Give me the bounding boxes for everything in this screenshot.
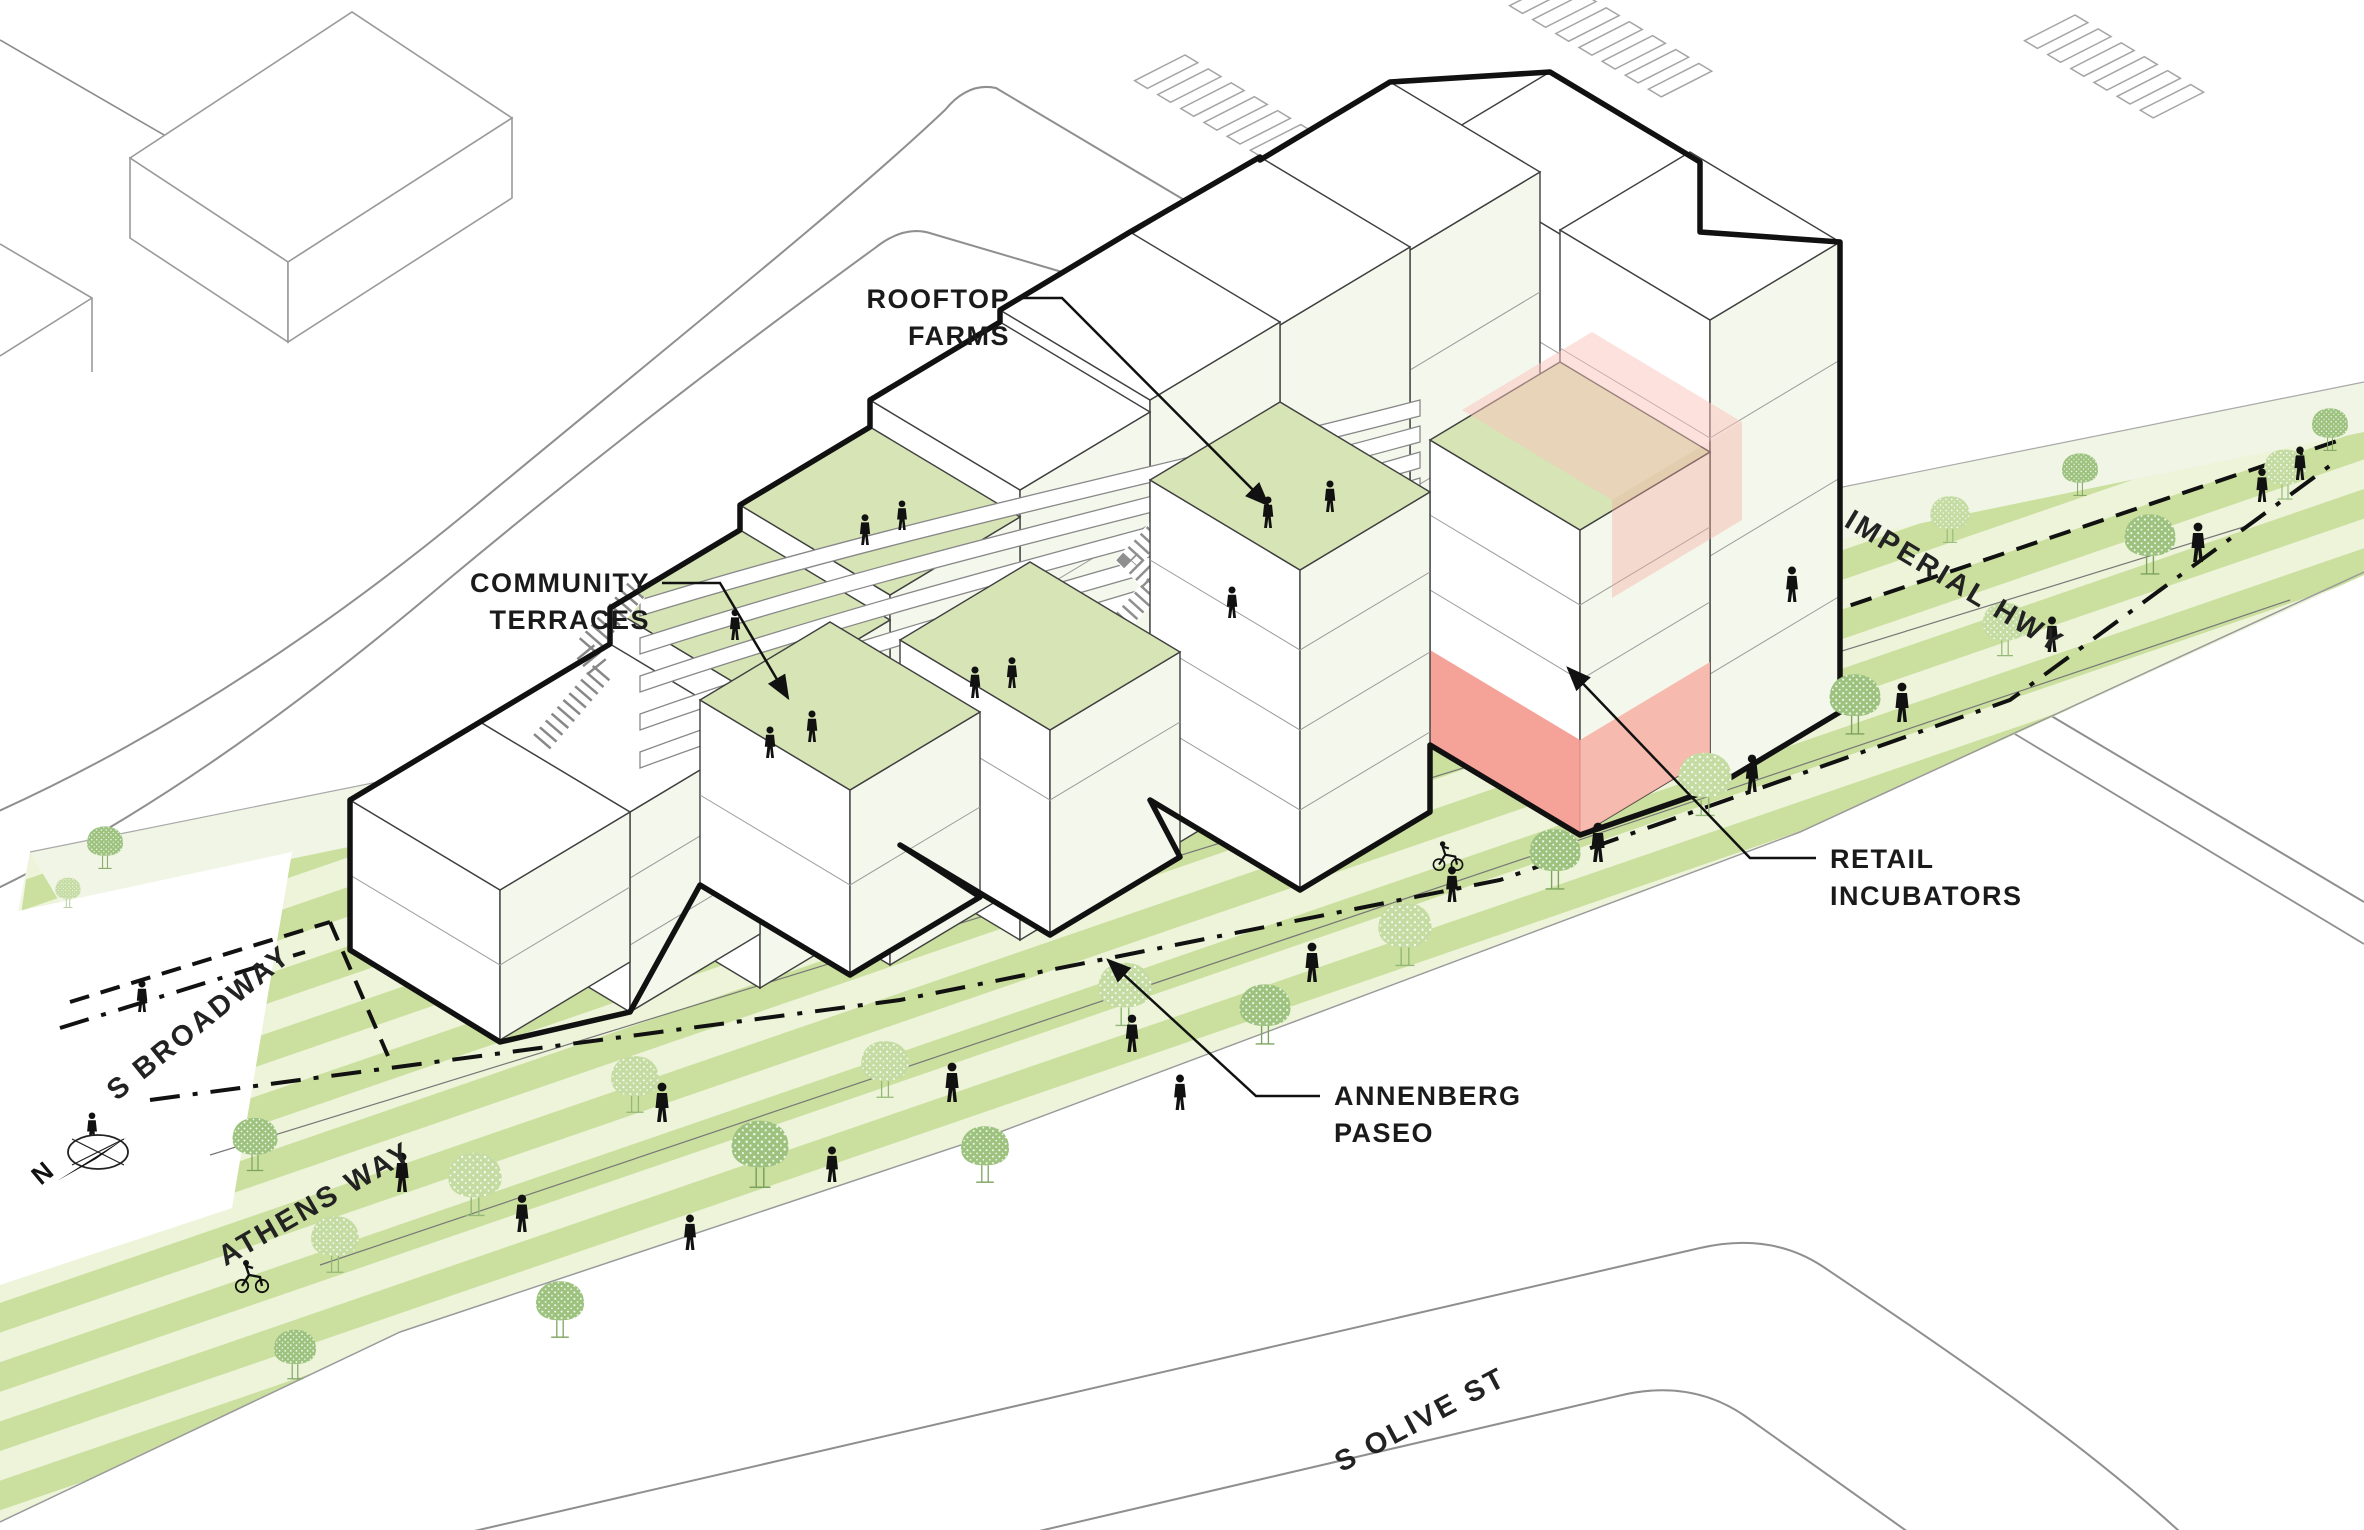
- label-s-olive-st: S OLIVE ST: [1330, 1361, 1512, 1478]
- label-annenberg-paseo-line2: PASEO: [1334, 1118, 1434, 1148]
- context-building-lower: [0, 244, 92, 372]
- building-f3-rooftop-farm: [1150, 402, 1430, 890]
- context-buildings: [0, 12, 512, 372]
- label-rooftop-farms-line2: FARMS: [908, 321, 1010, 351]
- label-retail-incubators-line2: INCUBATORS: [1830, 881, 2023, 911]
- label-retail-incubators-line1: RETAIL: [1830, 844, 1935, 874]
- label-rooftop-farms-line1: ROOFTOP: [866, 284, 1010, 314]
- street-s-olive-north-edge: [470, 1243, 2180, 1530]
- label-community-terraces-line2: TERRACES: [489, 605, 650, 635]
- site-diagram: ROOFTOP FARMS COMMUNITY TERRACES RETAIL …: [0, 0, 2364, 1530]
- label-annenberg-paseo-line1: ANNENBERG: [1334, 1081, 1522, 1111]
- diagram-canvas: ROOFTOP FARMS COMMUNITY TERRACES RETAIL …: [0, 0, 2364, 1530]
- label-community-terraces-line1: COMMUNITY: [470, 568, 650, 598]
